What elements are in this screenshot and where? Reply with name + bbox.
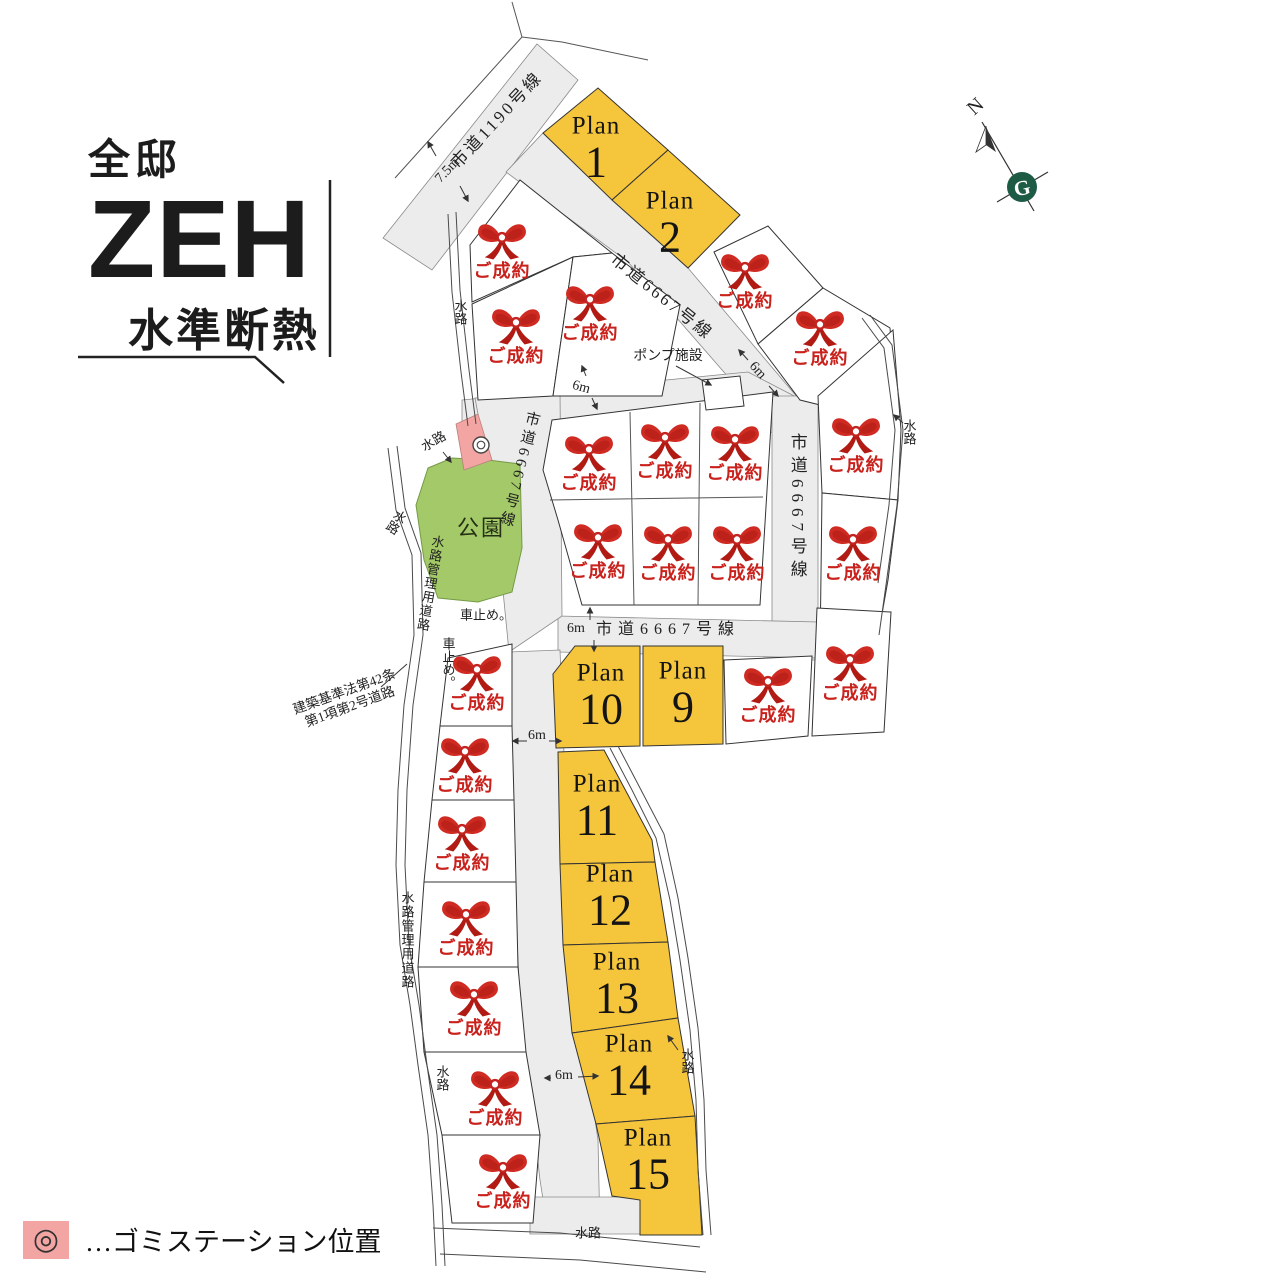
sold-label: ご成約 [770,344,870,370]
legend: ◎ …ゴミステーション位置 [23,1220,381,1259]
sold-lot-marker: ご成約 [424,975,524,1040]
plan-number: 2 [646,217,694,259]
pump-facility-label: ポンプ施設 [633,349,703,365]
sold-lot-marker: ご成約 [445,1065,545,1130]
zeh-badge: 全邸 ZEH 水準断熱 [88,126,320,359]
site-plan-map: 全邸 ZEH 水準断熱 N G 市道1190号線 市道6667号線 市道6667… [0,0,1280,1280]
sold-label: ご成約 [453,1187,553,1213]
sold-lot-marker: ご成約 [452,218,552,283]
plan-number: 12 [586,890,634,932]
plan-prefix: Plan [572,113,620,141]
sold-label: ご成約 [445,1104,545,1130]
plan-14-label: Plan 14 [605,1031,653,1102]
plan-number: 15 [624,1154,672,1196]
sold-label: ご成約 [806,451,906,477]
sold-label: ご成約 [687,559,787,585]
plan-15-label: Plan 15 [624,1125,672,1196]
sold-lot-marker: ご成約 [803,520,903,585]
plan-prefix: Plan [624,1125,672,1153]
sold-label: ご成約 [412,849,512,875]
ribbon-icon [446,975,502,1017]
plan-prefix: Plan [659,658,707,686]
plan-prefix: Plan [593,949,641,977]
ribbon-icon [740,662,796,704]
sold-label: ご成約 [424,1014,524,1040]
sold-lot-marker: ご成約 [540,280,640,345]
plan-number: 14 [605,1060,653,1102]
plan-2-label: Plan 2 [646,188,694,259]
dim-6m-bottom: 6m [555,1068,573,1084]
plan-number: 9 [659,687,707,729]
plan-prefix: Plan [577,660,625,688]
garbage-station-marker [473,437,489,453]
badge-line2: ZEH [88,189,320,290]
sold-lot-marker: ご成約 [687,520,787,585]
ribbon-icon [717,248,773,290]
waterway-mgmt-road-label-2: 水路管理用道路 [399,891,414,989]
north-arrowhead [986,126,996,152]
sold-lot-marker: ご成約 [427,650,527,715]
ribbon-icon [449,650,505,692]
sold-label: ご成約 [540,319,640,345]
sold-label: ご成約 [803,559,903,585]
road-label-6667-horizontal: 市道6667号線 [596,621,740,639]
plan-1-label: Plan 1 [572,113,620,184]
plan-number: 10 [577,689,625,731]
legend-label: …ゴミステーション位置 [85,1220,381,1259]
plan-prefix: Plan [646,188,694,216]
sold-label: ご成約 [452,257,552,283]
dim-6m-roadD: 6m [567,621,585,637]
ribbon-icon [562,280,618,322]
park-label: 公園 [457,515,505,540]
ribbon-icon [437,732,493,774]
waterway-label-bottom: 水路 [575,1227,601,1242]
badge-line3: 水準断熱 [128,294,320,359]
dim-6m-mid: 6m [528,728,546,744]
ribbon-icon [561,430,617,472]
plan-11-label: Plan 11 [573,771,621,842]
ribbon-icon [825,520,881,562]
car-stop-label-h: 車止め。 [460,609,512,624]
sold-lot-marker: ご成約 [416,895,516,960]
sold-label: ご成約 [466,342,566,368]
sold-label: ご成約 [685,459,785,485]
sold-lot-marker: ご成約 [415,732,515,797]
ribbon-icon [438,895,494,937]
ribbon-icon [474,218,530,260]
sold-lot-marker: ご成約 [412,810,512,875]
plan-number: 13 [593,978,641,1020]
plan-number: 11 [573,800,621,842]
ribbon-icon [822,640,878,682]
ribbon-icon [434,810,490,852]
compass [976,122,1048,211]
plan-number: 1 [572,142,620,184]
sold-label: ご成約 [416,934,516,960]
ribbon-icon [467,1065,523,1107]
sold-lot-marker: ご成約 [685,420,785,485]
plan-13-label: Plan 13 [593,949,641,1020]
legend-garbage-swatch: ◎ [23,1221,69,1259]
waterway-label-top: 水路 [452,299,467,325]
sold-label: ご成約 [718,701,818,727]
sold-lot-marker: ご成約 [453,1148,553,1213]
ribbon-icon [707,420,763,462]
ribbon-icon [792,305,848,347]
sold-label: ご成約 [415,771,515,797]
plan-9-label: Plan 9 [659,658,707,729]
waterway-label-planside: 水路 [679,1048,694,1074]
sold-lot-marker: ご成約 [695,248,795,313]
plan-12-label: Plan 12 [586,861,634,932]
sold-lot-marker: ご成約 [718,662,818,727]
sold-lot-marker: ご成約 [806,412,906,477]
ribbon-icon [709,520,765,562]
garbage-station-icon: ◎ [33,1225,59,1255]
plan-prefix: Plan [573,771,621,799]
pump-facility-structure [702,376,744,410]
plan-prefix: Plan [605,1031,653,1059]
ribbon-icon [828,412,884,454]
plan-10-label: Plan 10 [577,660,625,731]
sold-label: ご成約 [427,689,527,715]
ribbon-icon [488,303,544,345]
plan-prefix: Plan [586,861,634,889]
sold-lot-marker: ご成約 [770,305,870,370]
ribbon-icon [475,1148,531,1190]
